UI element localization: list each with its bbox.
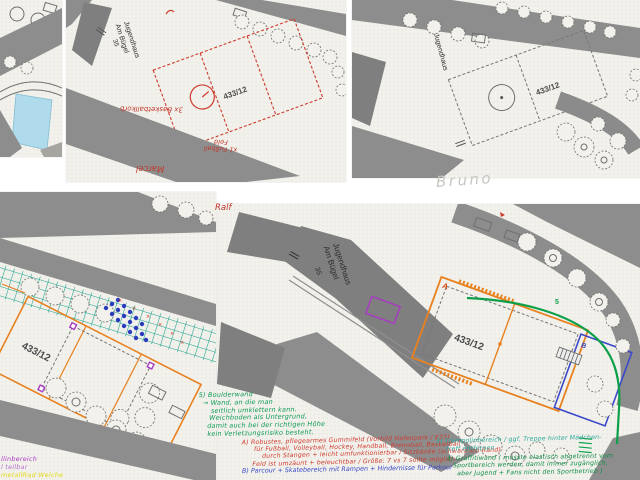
svg-text:×: × [170,331,174,337]
red-scribble [166,10,174,14]
red-note-fussball: x1 Fußball Feld [204,137,238,153]
author-name-bruno: Bruno [435,169,493,191]
parcel-number: 433/12 [535,80,562,97]
note-line: metallRad Weiche [1,471,63,479]
stairs-symbol [556,347,582,365]
note-boulderwand: 5) Boulderwand → Wand, an die man seitli… [199,390,326,439]
svg-text:×: × [132,306,136,312]
plan-scan-bottom-left: ××× ××× 433/12 [0,192,216,480]
parcel-number: 433/12 [222,84,249,101]
red-note-basketball: 3x Basketballkorb [120,104,183,113]
road-band [352,126,464,178]
marker-5: 5 [555,299,559,306]
svg-text:×: × [180,340,184,346]
plan-scan-top-left [0,0,62,157]
road-band [352,0,640,58]
scanned-plan-collage: Jugendhaus Am Bügel 35 [0,0,640,480]
tree-cluster [557,69,640,169]
svg-text:×: × [158,322,162,328]
tree-symbol [21,62,33,74]
house-number: 35 [111,38,120,47]
plan-drawing-top-right: Jugendhaus 433/12 [352,0,640,178]
building-block [217,322,285,398]
note-graffitiwand: 4) Graffitiwand ( müsste elastisch abget… [447,453,614,478]
road-band [66,88,300,182]
parcel-number: 433/12 [20,341,53,365]
plan-scan-top-middle: Jugendhaus Am Bügel 35 [66,0,346,182]
note-line: llinbereich [1,455,63,463]
plan-scan-top-right: Jugendhaus 433/12 [352,0,640,178]
building-block [352,52,386,126]
marker-a: A [441,281,450,292]
plan-drawing-bottom-left: ××× ××× 433/12 [0,192,216,480]
author-name-marcel: Marcel [136,163,164,173]
plan-drawing-top-middle: Jugendhaus Am Bügel 35 [66,0,346,182]
svg-text:×: × [146,314,150,320]
note-line: l teilbar [1,463,63,471]
author-name-ralf: Ralf [215,203,231,213]
svg-text:×: × [118,298,122,304]
tree-symbol [4,56,16,68]
parcel-number: 433/12 [453,332,486,353]
building-label: Jugendhaus [432,33,449,72]
note-bottom-left-fragments: llinbereich l teilbar metallRad Weiche [1,455,63,479]
red-scribble [500,212,505,217]
plan-drawing-top-left [0,0,62,157]
